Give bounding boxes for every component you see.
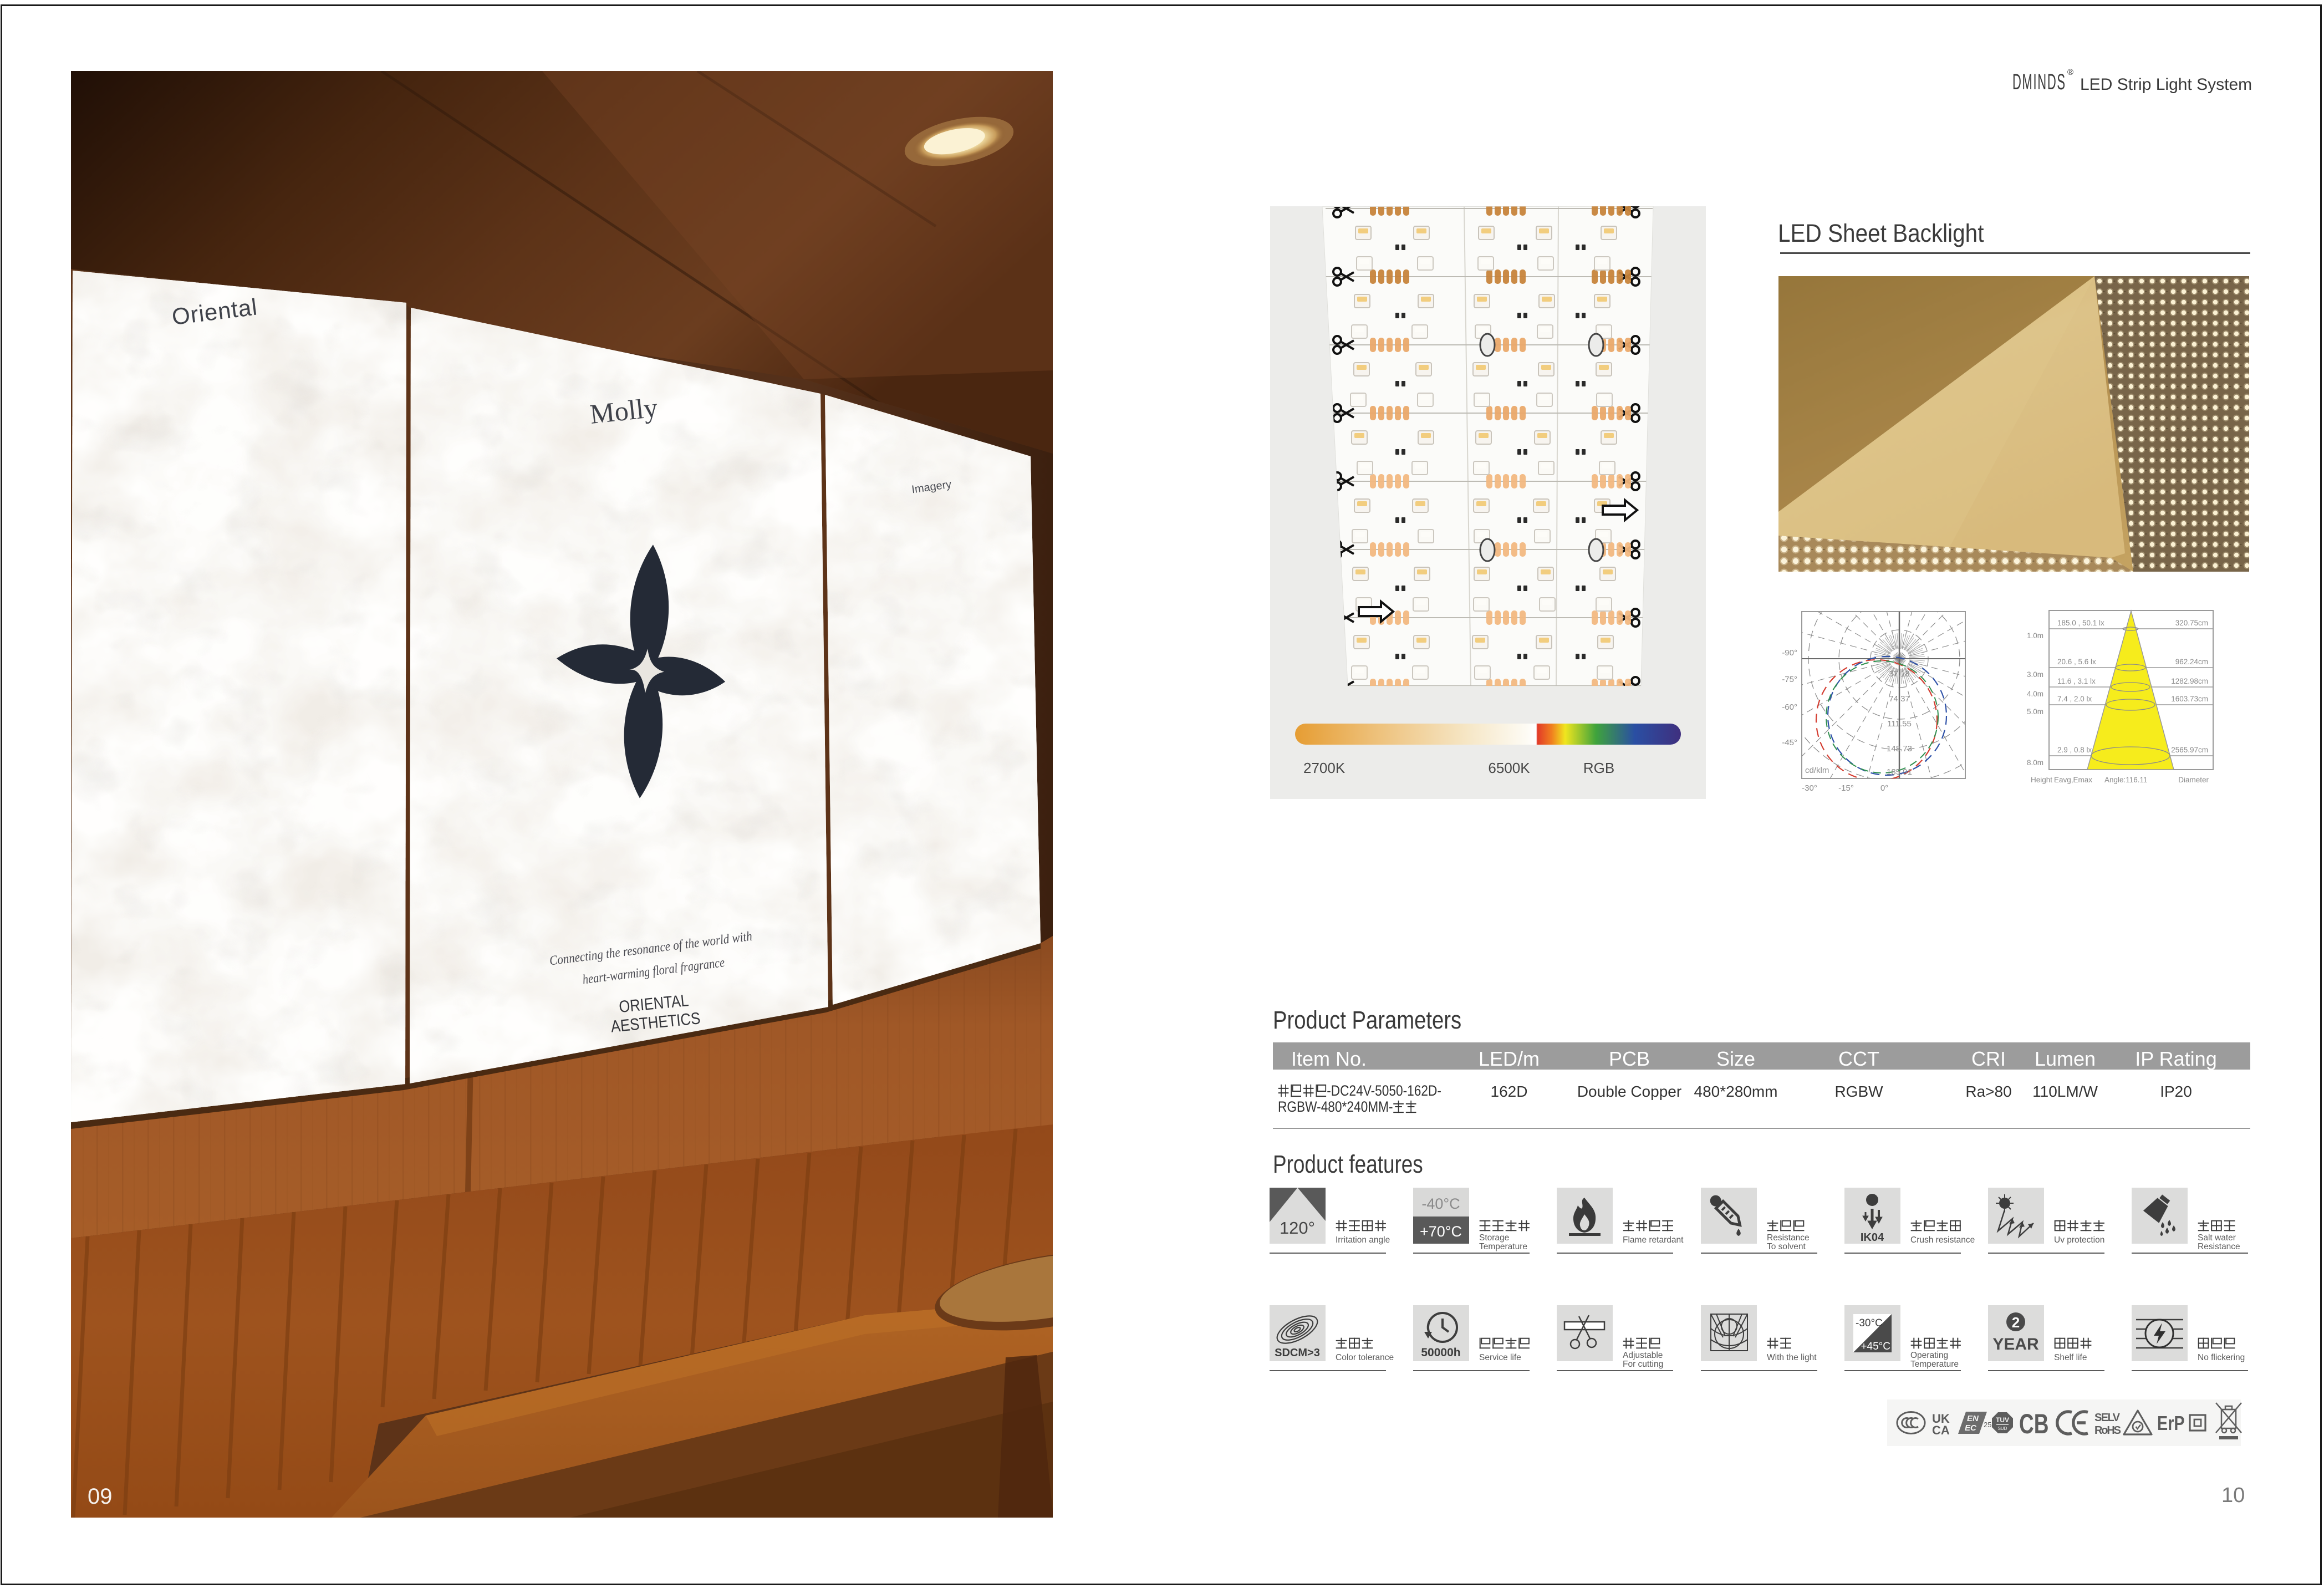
- svg-text:-90°: -90°: [1782, 648, 1797, 658]
- svg-text:Angle:116.11: Angle:116.11: [2104, 776, 2148, 784]
- svg-text:185.0 , 50.1 lx: 185.0 , 50.1 lx: [2057, 619, 2104, 627]
- svg-text:2: 2: [2012, 1314, 2020, 1331]
- svg-text:+45°C: +45°C: [1861, 1341, 1890, 1352]
- svg-text:962.24cm: 962.24cm: [2175, 658, 2208, 666]
- svg-text:-30°C: -30°C: [1856, 1317, 1883, 1329]
- svg-text:Height: Height: [2031, 776, 2052, 784]
- svg-text:2.9 , 0.8 lx: 2.9 , 0.8 lx: [2057, 746, 2092, 754]
- svg-text:1603.73cm: 1603.73cm: [2171, 695, 2208, 703]
- svg-text:50000h: 50000h: [1421, 1346, 1460, 1359]
- svg-text:-75°: -75°: [1782, 675, 1797, 684]
- svg-text:8.0m: 8.0m: [2027, 759, 2043, 767]
- svg-text:4.0m: 4.0m: [2027, 690, 2043, 698]
- svg-text:-40°C: -40°C: [1421, 1195, 1460, 1212]
- svg-text:-45°: -45°: [1782, 738, 1797, 747]
- svg-text:-15°: -15°: [1838, 783, 1854, 793]
- svg-text:IK04: IK04: [1861, 1231, 1884, 1244]
- svg-text:5.0m: 5.0m: [2027, 708, 2043, 716]
- svg-text:RoHS: RoHS: [2094, 1424, 2121, 1437]
- svg-text:37.18: 37.18: [1889, 669, 1910, 679]
- svg-text:ErP: ErP: [2157, 1412, 2185, 1434]
- svg-text:0°: 0°: [1880, 783, 1888, 793]
- svg-text:25: 25: [1984, 1421, 1991, 1429]
- svg-text:+70°C: +70°C: [1420, 1223, 1462, 1240]
- svg-text:74.37: 74.37: [1889, 694, 1910, 704]
- svg-text:cd/klm: cd/klm: [1805, 766, 1829, 775]
- svg-text:1282.98cm: 1282.98cm: [2171, 677, 2208, 685]
- svg-text:3.0m: 3.0m: [2027, 670, 2043, 679]
- svg-text:YEAR: YEAR: [1992, 1335, 2039, 1353]
- svg-text:Eavg,Emax: Eavg,Emax: [2054, 776, 2092, 784]
- svg-text:TUV: TUV: [1996, 1416, 2009, 1424]
- svg-text:EN: EN: [1967, 1414, 1979, 1423]
- svg-text:120°: 120°: [1280, 1218, 1315, 1238]
- svg-text:320.75cm: 320.75cm: [2175, 619, 2208, 627]
- svg-text:RGB: RGB: [1583, 760, 1614, 776]
- svg-text:111.55: 111.55: [1887, 719, 1912, 729]
- svg-text:2700K: 2700K: [1303, 760, 1346, 776]
- svg-text:7.4 , 2.0 lx: 7.4 , 2.0 lx: [2057, 695, 2092, 703]
- svg-text:Diameter: Diameter: [2178, 776, 2209, 784]
- svg-text:20.6 , 5.6 lx: 20.6 , 5.6 lx: [2057, 658, 2096, 666]
- svg-text:EC: EC: [1965, 1423, 1977, 1433]
- svg-text:SDCM>3: SDCM>3: [1275, 1347, 1320, 1359]
- svg-text:-30°: -30°: [1802, 783, 1817, 793]
- svg-text:CA: CA: [1932, 1423, 1950, 1437]
- svg-text:11.6 , 3.1 lx: 11.6 , 3.1 lx: [2057, 677, 2096, 685]
- svg-text:SELV: SELV: [2094, 1412, 2121, 1424]
- svg-text:2565.97cm: 2565.97cm: [2171, 746, 2208, 754]
- svg-text:SUD: SUD: [1998, 1426, 2007, 1431]
- svg-text:-60°: -60°: [1782, 703, 1797, 712]
- svg-text:09: 09: [88, 1484, 113, 1509]
- svg-text:6500K: 6500K: [1488, 760, 1530, 776]
- svg-text:CB: CB: [2019, 1409, 2048, 1440]
- svg-text:148.73: 148.73: [1887, 744, 1912, 754]
- svg-text:1.0m: 1.0m: [2027, 632, 2043, 640]
- svg-text:185.91: 185.91: [1887, 767, 1912, 777]
